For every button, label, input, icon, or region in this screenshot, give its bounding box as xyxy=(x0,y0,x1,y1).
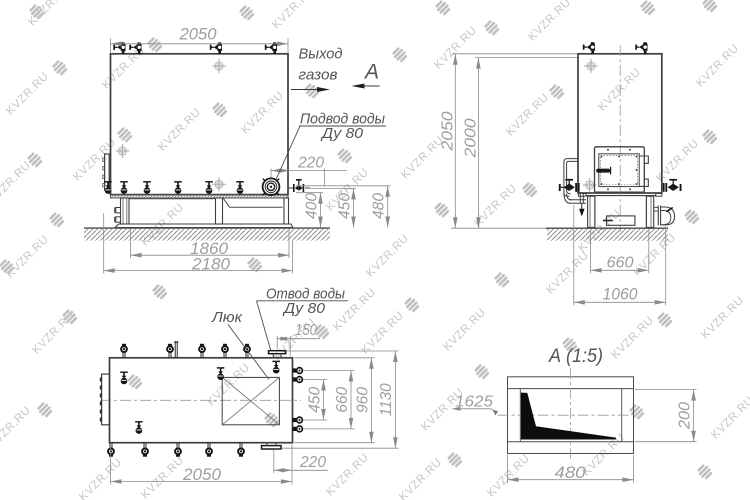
svg-text:KVZR.RU: KVZR.RU xyxy=(699,294,746,341)
svg-text:KVZR.RU: KVZR.RU xyxy=(472,182,519,229)
svg-text:1060: 1060 xyxy=(603,285,638,304)
svg-text:KVZR.RU: KVZR.RU xyxy=(441,306,488,353)
svg-text:660: 660 xyxy=(334,387,351,413)
svg-text:KVZR.RU: KVZR.RU xyxy=(26,0,73,28)
svg-text:220: 220 xyxy=(297,155,324,172)
svg-text:Выход: Выход xyxy=(299,46,343,63)
svg-text:KVZR.RU: KVZR.RU xyxy=(156,106,203,153)
svg-text:KVZR.RU: KVZR.RU xyxy=(709,394,750,441)
svg-text:1130: 1130 xyxy=(378,383,395,416)
svg-text:KVZR.RU: KVZR.RU xyxy=(359,309,406,356)
svg-text:KVZR.RU: KVZR.RU xyxy=(397,456,444,500)
svg-text:KVZR.RU: KVZR.RU xyxy=(77,456,124,500)
svg-text:660: 660 xyxy=(607,255,634,272)
svg-text:400: 400 xyxy=(304,193,321,219)
svg-text:2180: 2180 xyxy=(191,254,231,273)
svg-text:KVZR.RU: KVZR.RU xyxy=(504,91,551,138)
svg-text:KVZR.RU: KVZR.RU xyxy=(485,452,532,499)
svg-text:KVZR.RU: KVZR.RU xyxy=(364,232,411,279)
svg-text:KVZR.RU: KVZR.RU xyxy=(4,233,51,280)
svg-text:2050: 2050 xyxy=(440,111,457,152)
svg-text:KVZR.RU: KVZR.RU xyxy=(526,0,573,43)
svg-text:KVZR.RU: KVZR.RU xyxy=(71,136,118,183)
svg-text:KVZR.RU: KVZR.RU xyxy=(30,309,77,356)
svg-text:480: 480 xyxy=(371,193,388,219)
svg-text:450: 450 xyxy=(337,193,354,219)
svg-text:1625: 1625 xyxy=(455,394,493,411)
svg-text:200: 200 xyxy=(677,402,694,430)
svg-text:газов: газов xyxy=(299,67,338,84)
svg-text:KVZR.RU: KVZR.RU xyxy=(139,454,186,500)
svg-text:2050: 2050 xyxy=(179,25,218,44)
svg-text:KVZR.RU: KVZR.RU xyxy=(270,0,317,31)
svg-text:2000: 2000 xyxy=(463,118,480,159)
svg-text:480: 480 xyxy=(555,463,587,482)
svg-text:KVZR.RU: KVZR.RU xyxy=(432,24,479,71)
svg-text:KVZR.RU: KVZR.RU xyxy=(139,201,186,248)
svg-text:2050: 2050 xyxy=(182,465,222,484)
svg-text:А: А xyxy=(363,61,379,84)
svg-text:450: 450 xyxy=(307,387,324,413)
svg-text:KVZR.RU: KVZR.RU xyxy=(4,70,51,117)
svg-text:Люк: Люк xyxy=(211,309,243,326)
svg-text:220: 220 xyxy=(299,454,326,471)
svg-text:А (1:5): А (1:5) xyxy=(548,345,603,367)
svg-text:KVZR.RU: KVZR.RU xyxy=(609,314,656,361)
svg-text:KVZR.RU: KVZR.RU xyxy=(0,404,33,451)
svg-text:150: 150 xyxy=(295,322,317,339)
svg-text:KVZR.RU: KVZR.RU xyxy=(205,361,252,408)
svg-text:KVZR.RU: KVZR.RU xyxy=(694,42,741,89)
svg-text:KVZR.RU: KVZR.RU xyxy=(324,451,371,498)
svg-text:Ду 80: Ду 80 xyxy=(282,300,326,317)
svg-text:960: 960 xyxy=(354,387,371,413)
svg-text:Ду 80: Ду 80 xyxy=(320,125,364,142)
svg-text:KVZR.RU: KVZR.RU xyxy=(0,159,33,206)
svg-text:KVZR.RU: KVZR.RU xyxy=(239,89,286,136)
svg-text:KVZR.RU: KVZR.RU xyxy=(544,249,591,296)
